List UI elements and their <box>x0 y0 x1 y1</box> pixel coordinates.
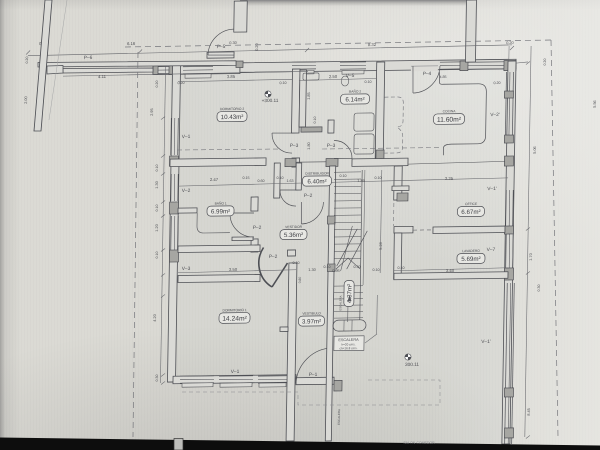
svg-text:2.00: 2.00 <box>24 96 28 103</box>
svg-text:BAÑO 2: BAÑO 2 <box>349 88 361 93</box>
svg-text:SALON-COMEDOR: SALON-COMEDOR <box>403 441 435 445</box>
svg-text:6.67m²: 6.67m² <box>461 209 480 216</box>
svg-text:0.20: 0.20 <box>155 81 159 88</box>
svg-text:V–1': V–1' <box>487 186 497 192</box>
svg-text:VESTIBULO: VESTIBULO <box>302 311 321 315</box>
svg-text:300.11: 300.11 <box>405 362 419 367</box>
svg-text:P–2: P–2 <box>304 193 313 199</box>
svg-text:0.10: 0.10 <box>323 265 330 269</box>
svg-text:0.10: 0.10 <box>292 261 299 265</box>
svg-text:1.85: 1.85 <box>357 179 364 183</box>
svg-text:2.47: 2.47 <box>210 177 219 182</box>
svg-text:1.30: 1.30 <box>155 181 159 188</box>
svg-text:0.20: 0.20 <box>178 81 185 85</box>
svg-text:P–2: P–2 <box>269 254 278 260</box>
svg-text:DORMITORIO 2: DORMITORIO 2 <box>220 107 244 111</box>
svg-text:DISTRIBUIDOR: DISTRIBUIDOR <box>305 171 329 175</box>
svg-text:6.16: 6.16 <box>127 41 136 46</box>
svg-text:LAVADERO: LAVADERO <box>462 249 480 253</box>
svg-text:0.30: 0.30 <box>155 374 159 381</box>
svg-text:5.06: 5.06 <box>533 146 537 153</box>
svg-text:BAÑO 1: BAÑO 1 <box>215 200 227 205</box>
svg-text:DORMITORIO 1: DORMITORIO 1 <box>223 308 247 312</box>
svg-text:3.35: 3.35 <box>445 176 454 181</box>
svg-text:V–1: V–1 <box>182 134 191 140</box>
svg-text:0.10: 0.10 <box>155 204 159 211</box>
svg-text:2.50: 2.50 <box>329 74 338 79</box>
svg-text:ch=16.8 cms.: ch=16.8 cms. <box>340 346 358 350</box>
svg-text:1.20: 1.20 <box>155 224 159 231</box>
svg-text:0.60: 0.60 <box>257 179 264 183</box>
svg-text:0.10: 0.10 <box>372 268 379 272</box>
svg-text:VESTIDOR: VESTIDOR <box>285 225 303 229</box>
svg-text:5.36m²: 5.36m² <box>284 232 303 239</box>
svg-text:P–1: P–1 <box>309 372 318 378</box>
svg-text:0.10: 0.10 <box>155 164 159 171</box>
svg-text:1.80: 1.80 <box>307 142 311 149</box>
svg-text:0.20: 0.20 <box>543 59 547 66</box>
svg-text:ESCALERA: ESCALERA <box>338 338 359 342</box>
svg-text:0.15: 0.15 <box>242 176 249 180</box>
svg-text:4.20: 4.20 <box>153 314 157 321</box>
svg-text:V–5: V–5 <box>346 73 355 79</box>
svg-text:ESCALERA: ESCALERA <box>338 295 342 310</box>
svg-text:4.85: 4.85 <box>439 75 446 79</box>
svg-text:0.95: 0.95 <box>332 269 339 273</box>
svg-text:ESCALERA: ESCALERA <box>337 409 341 425</box>
svg-text:V–2: V–2 <box>182 188 191 194</box>
svg-text:P–6: P–6 <box>84 55 93 61</box>
svg-text:0.20: 0.20 <box>255 43 259 50</box>
svg-text:V–1': V–1' <box>481 339 491 345</box>
svg-text:+300.11: +300.11 <box>262 98 279 103</box>
svg-text:0.10: 0.10 <box>276 176 283 180</box>
svg-text:0.10: 0.10 <box>339 174 346 178</box>
svg-text:0.20: 0.20 <box>25 57 29 64</box>
svg-text:0.30: 0.30 <box>537 284 541 291</box>
svg-text:0.10: 0.10 <box>364 80 371 84</box>
svg-text:0.30: 0.30 <box>229 41 236 45</box>
svg-text:P–3: P–3 <box>327 143 336 149</box>
svg-text:11.60m²: 11.60m² <box>437 117 462 124</box>
svg-text:0.20: 0.20 <box>493 81 500 85</box>
svg-text:3.97m²: 3.97m² <box>302 318 321 325</box>
svg-text:V–2': V–2' <box>490 112 500 118</box>
svg-text:0.30: 0.30 <box>353 265 360 269</box>
svg-text:5.56: 5.56 <box>593 100 597 107</box>
svg-text:10.43m²: 10.43m² <box>221 114 244 121</box>
svg-text:6.14m²: 6.14m² <box>345 96 364 103</box>
svg-text:P–3: P–3 <box>290 143 299 149</box>
svg-text:P–4: P–4 <box>423 71 432 77</box>
svg-text:V–7: V–7 <box>487 247 496 253</box>
svg-text:0.10: 0.10 <box>279 81 286 85</box>
svg-text:0.10: 0.10 <box>313 117 317 124</box>
svg-text:0.80: 0.80 <box>298 277 302 284</box>
svg-text:OFFICE: OFFICE <box>465 202 478 206</box>
svg-text:3.85: 3.85 <box>227 74 236 79</box>
svg-text:8.45: 8.45 <box>527 408 531 415</box>
svg-text:5.69m²: 5.69m² <box>461 256 480 263</box>
svg-text:0.20: 0.20 <box>506 41 513 45</box>
svg-text:5.28: 5.28 <box>379 242 383 249</box>
svg-text:4.11: 4.11 <box>98 74 107 79</box>
svg-text:V–1: V–1 <box>231 369 240 375</box>
svg-text:6.99m²: 6.99m² <box>211 208 230 215</box>
svg-text:1.70: 1.70 <box>529 253 533 260</box>
svg-text:0.10: 0.10 <box>155 251 159 258</box>
svg-text:3.50: 3.50 <box>229 267 238 272</box>
svg-text:1.85: 1.85 <box>307 92 311 99</box>
svg-text:0.10: 0.10 <box>397 266 404 270</box>
svg-text:1.30: 1.30 <box>308 268 315 272</box>
svg-text:P–2: P–2 <box>253 225 262 231</box>
svg-text:3.40: 3.40 <box>446 268 455 273</box>
svg-text:P–5: P–5 <box>217 44 226 50</box>
svg-text:14.24m²: 14.24m² <box>222 315 247 322</box>
svg-text:0.10: 0.10 <box>374 176 381 180</box>
svg-text:6.40m²: 6.40m² <box>307 178 326 185</box>
svg-text:COCINA: COCINA <box>443 109 457 113</box>
svg-text:V–3: V–3 <box>182 266 191 272</box>
svg-text:2.95: 2.95 <box>150 108 154 115</box>
svg-text:1.63: 1.63 <box>286 179 293 183</box>
